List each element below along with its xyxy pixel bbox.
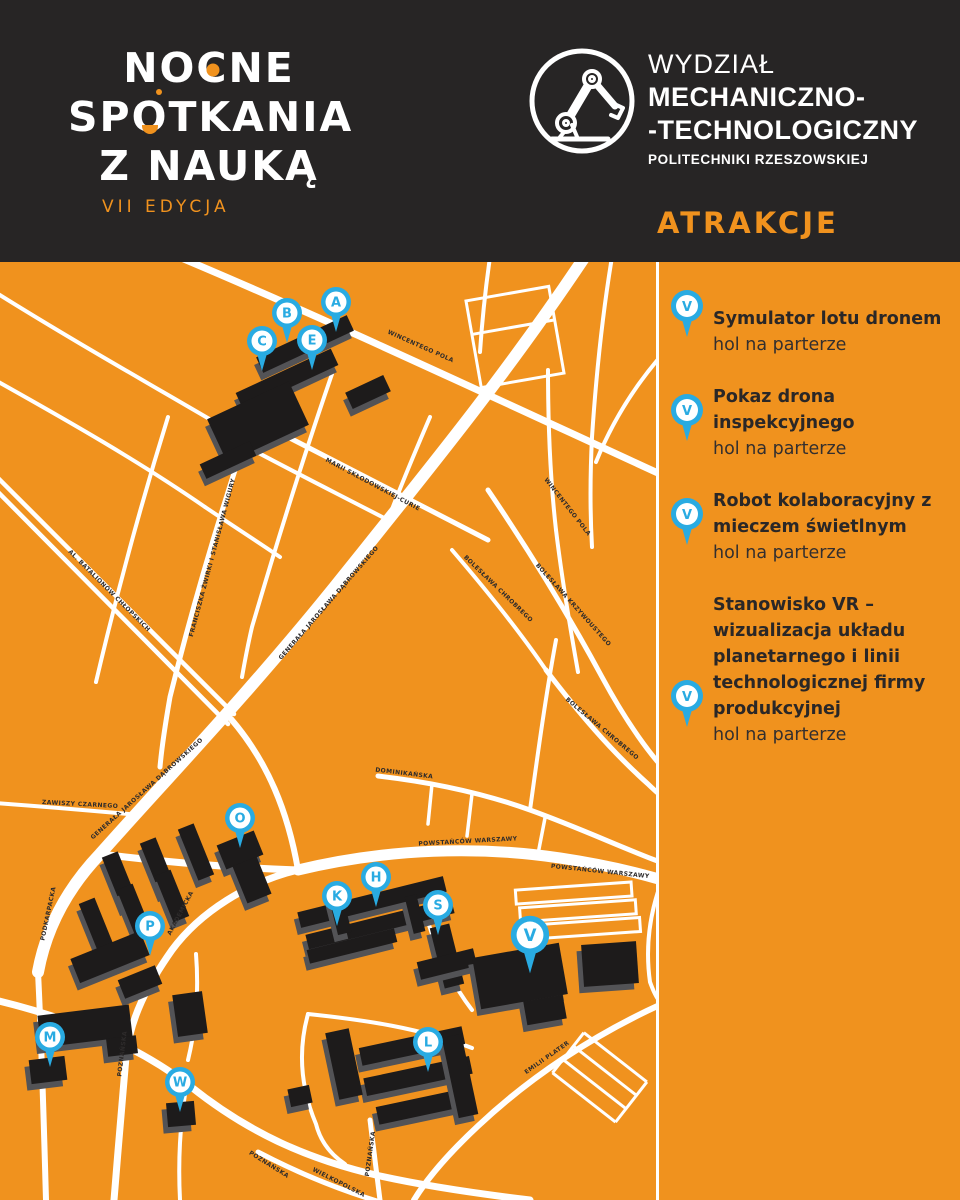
location-pin-icon: V [667, 496, 707, 548]
svg-text:S: S [433, 899, 442, 914]
svg-text:A: A [331, 296, 341, 311]
attraction-title: Pokaz drona inspekcyjnego [713, 384, 948, 436]
event-logo: NOCNE NOCNE SPOTKANIA SPOTKANIA Z NAUKĄ … [68, 44, 350, 217]
event-edition: VII EDYCJA [68, 197, 350, 217]
attraction-item: V Symulator lotu dronem hol na parterze [659, 306, 948, 358]
svg-text:E: E [308, 334, 317, 349]
event-logo-line2: SPOTKANIA [68, 93, 350, 142]
svg-text:B: B [282, 307, 292, 322]
event-logo-line1: NOCNE [68, 44, 350, 93]
svg-text:W: W [173, 1076, 187, 1091]
svg-text:C: C [257, 335, 267, 350]
attraction-location: hol na parterze [713, 436, 948, 462]
attractions-sidebar: V Symulator lotu dronem hol na parterze … [656, 262, 960, 1200]
faculty-line4: POLITECHNIKI RZESZOWSKIEJ [648, 152, 918, 167]
svg-text:V: V [682, 300, 692, 315]
attraction-location: hol na parterze [713, 332, 948, 358]
event-logo-line3: Z NAUKĄ [68, 142, 350, 191]
attraction-location: hol na parterze [713, 540, 948, 566]
robot-arm-logo-icon [527, 46, 637, 156]
attractions-heading: ATRAKCJE [657, 206, 839, 240]
attraction-item: V Stanowisko VR – wizualizacja układu pl… [659, 592, 948, 748]
event-map-poster: NOCNE NOCNE SPOTKANIA SPOTKANIA Z NAUKĄ … [0, 0, 960, 1200]
attraction-title: Symulator lotu dronem [713, 306, 948, 332]
faculty-line1: WYDZIAŁ [648, 48, 918, 81]
svg-text:V: V [682, 508, 692, 523]
location-pin-icon: V [667, 288, 707, 340]
svg-text:V: V [524, 926, 537, 945]
faculty-line2: MECHANICZNO- [648, 81, 918, 114]
attraction-item: V Pokaz drona inspekcyjnego hol na parte… [659, 384, 948, 462]
flask-letter: O [132, 93, 169, 141]
svg-text:M: M [44, 1031, 57, 1046]
svg-text:K: K [332, 890, 343, 905]
attraction-title: Stanowisko VR – wizualizacja układu plan… [713, 592, 948, 722]
campus-map: WINCENTEGO POLA FRANCISZKA ŻWIRKI I STAN… [0, 262, 656, 1200]
faculty-logo-text: WYDZIAŁ MECHANICZNO- -TECHNOLOGICZNY POL… [648, 48, 918, 167]
location-pin-icon: V [667, 678, 707, 730]
attraction-item: V Robot kolaboracyjny z mieczem świetlny… [659, 488, 948, 566]
attraction-title: Robot kolaboracyjny z mieczem świetlnym [713, 488, 948, 540]
faculty-line3: -TECHNOLOGICZNY [648, 114, 918, 147]
svg-text:P: P [145, 920, 155, 935]
location-pin-icon: V [667, 392, 707, 444]
header: NOCNE NOCNE SPOTKANIA SPOTKANIA Z NAUKĄ … [0, 0, 960, 262]
svg-text:L: L [424, 1036, 432, 1051]
svg-text:V: V [682, 404, 692, 419]
moon-letter: C [196, 44, 228, 92]
attraction-location: hol na parterze [713, 722, 948, 748]
svg-text:O: O [234, 812, 245, 827]
svg-text:V: V [682, 690, 692, 705]
svg-text:H: H [371, 871, 382, 886]
